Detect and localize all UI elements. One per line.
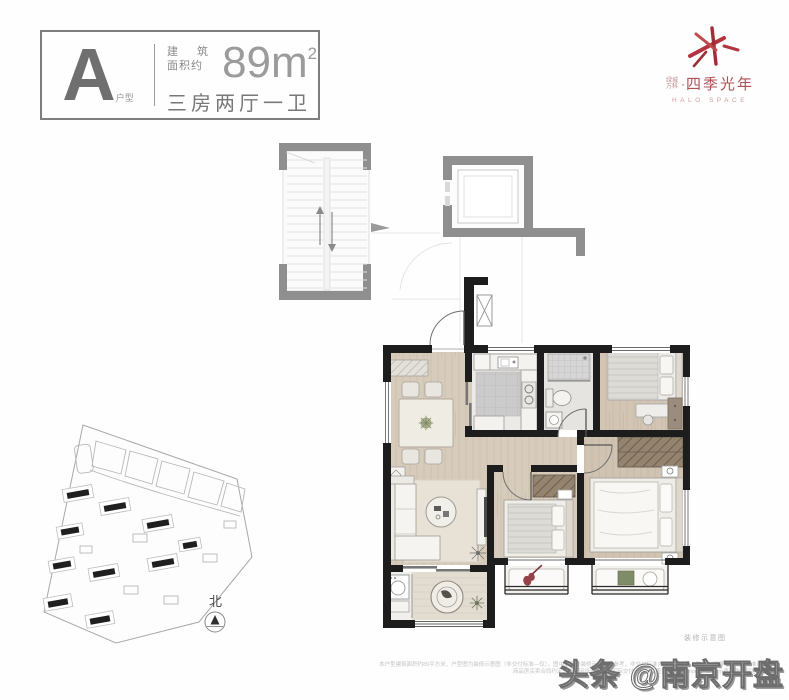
brand-prefix-line2: 万科: [666, 84, 678, 90]
unit-badge: A 户型 建 筑 面积约 89m2 三房两厅一卫: [40, 30, 320, 120]
headboard: [676, 478, 683, 552]
pillow: [660, 518, 672, 546]
round-pillow: [643, 572, 657, 586]
coffee-table: [426, 497, 456, 527]
brand-separator: ·: [681, 77, 685, 91]
north-label: 北: [209, 594, 222, 609]
balcony-plant: [470, 596, 484, 610]
plant-box: [618, 571, 634, 585]
dining-chair: [425, 449, 442, 464]
fridge: [474, 354, 490, 370]
kitchen-tile: [476, 372, 520, 416]
nightstand: [558, 490, 572, 499]
area-number: 89m: [222, 38, 308, 87]
unit-type-label: 户型: [116, 91, 134, 104]
master-bedroom: [590, 466, 683, 564]
kitchen-cabinet: [474, 416, 504, 432]
desk-chair: [643, 415, 653, 425]
elevator-cab: [458, 170, 518, 223]
sofa-chaise: [395, 536, 440, 560]
area-value: 89m2: [222, 34, 317, 83]
project-name-en: HALO SPACE: [636, 97, 784, 104]
dining-chair: [425, 382, 442, 397]
unit-letter-block: A 户型: [42, 38, 154, 112]
stairwell: [279, 143, 390, 300]
tv: [484, 497, 487, 537]
pillow: [660, 356, 673, 374]
watermark: 头条 @南京开盘: [558, 650, 784, 694]
lobby-door-arc: [400, 243, 452, 290]
elevator: [443, 156, 585, 256]
brand-prefix: 绿城 万科: [666, 78, 678, 90]
dresser: [668, 398, 682, 429]
area-label-line1: 建 筑: [167, 45, 216, 59]
pillow: [552, 506, 564, 526]
desk: [636, 404, 668, 417]
site-plan: 北: [43, 425, 252, 643]
headboard: [566, 500, 573, 557]
toilet-tank: [546, 389, 553, 407]
project-name: 四季光年: [686, 73, 754, 94]
pillow: [660, 377, 673, 395]
pillow: [660, 484, 672, 512]
area-labels: 建 筑 面积约: [167, 45, 216, 73]
dining-chair: [402, 449, 419, 464]
brand-name-cn: 绿城 万科 · 四季光年: [636, 73, 784, 94]
entry-door-arc: [430, 311, 464, 345]
floorplan-page: 北 A 户型 建 筑 面积约 89m2 三房两厅一卫: [0, 0, 789, 700]
living-room: [386, 467, 487, 562]
headboard: [676, 352, 682, 400]
plan-caption: 装修示意图: [684, 633, 727, 643]
corridor-wall-wedge: [371, 223, 390, 232]
unit-letter: A: [62, 38, 113, 112]
dining-chair: [402, 382, 419, 397]
rooms-summary: 三房两厅一卫: [167, 87, 318, 116]
pillow: [552, 530, 564, 550]
floor-plant: [470, 545, 486, 561]
brand-logo: 绿城 万科 · 四季光年 HALO SPACE: [636, 26, 784, 118]
badge-details: 建 筑 面积约 89m2 三房两厅一卫: [155, 34, 318, 116]
basin: [550, 416, 559, 425]
toilet: [553, 391, 571, 406]
star-spark-icon: [678, 26, 742, 72]
area-label-line2: 面积约: [167, 59, 216, 73]
lobby-corridor: [371, 233, 522, 345]
area-superscript: 2: [308, 44, 317, 63]
sideboard: [388, 360, 428, 376]
